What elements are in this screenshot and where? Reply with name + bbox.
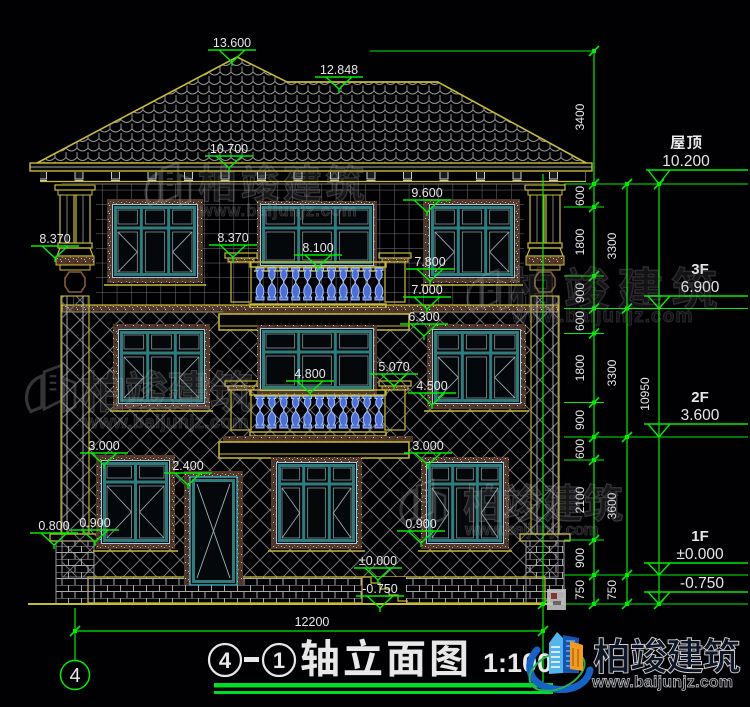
svg-text:4.800: 4.800 [294,367,325,381]
svg-text:www.baijunjz.com: www.baijunjz.com [464,520,600,539]
svg-text:10.700: 10.700 [210,142,248,156]
svg-text:2.400: 2.400 [172,459,203,473]
svg-text:900: 900 [573,548,587,568]
svg-text:6.300: 6.300 [408,310,439,324]
svg-text:7.800: 7.800 [414,255,445,269]
svg-text:1F: 1F [691,528,709,545]
svg-text:3400: 3400 [573,103,587,130]
svg-text:10.200: 10.200 [662,153,710,170]
svg-text:www.baijunjz.com: www.baijunjz.com [591,674,733,691]
svg-text:8.370: 8.370 [39,232,70,246]
svg-text:600: 600 [573,439,587,459]
svg-text:5.070: 5.070 [378,360,409,374]
svg-text:0.800: 0.800 [38,519,69,533]
svg-text:-0.750: -0.750 [680,575,724,592]
svg-text:750: 750 [605,580,619,600]
svg-text:12.848: 12.848 [320,63,358,77]
svg-text:9.600: 9.600 [411,186,442,200]
svg-text:3.000: 3.000 [88,439,119,453]
svg-text:1800: 1800 [573,354,587,381]
svg-text:±0.000: ±0.000 [359,554,397,568]
svg-text:1: 1 [273,648,285,673]
svg-text:www.baijunjz.com: www.baijunjz.com [83,411,250,432]
svg-text:4: 4 [219,648,232,673]
svg-text:750: 750 [573,580,587,600]
svg-text:10950: 10950 [638,377,652,411]
svg-text:1800: 1800 [573,228,587,255]
svg-text:www.baijunjz.com: www.baijunjz.com [511,306,694,327]
svg-text:8.370: 8.370 [217,231,248,245]
svg-text:1:100: 1:100 [483,648,552,678]
svg-text:4.500: 4.500 [416,379,447,393]
svg-text:3300: 3300 [605,232,619,259]
svg-text:www.baijunjz.com: www.baijunjz.com [199,202,358,220]
svg-text:3.000: 3.000 [412,439,443,453]
svg-text:3.600: 3.600 [681,407,720,424]
svg-text:12200: 12200 [295,615,330,629]
svg-text:900: 900 [573,410,587,430]
svg-text:7.000: 7.000 [411,283,442,297]
svg-text:8.100: 8.100 [302,241,333,255]
svg-text:-0.750: -0.750 [362,582,397,596]
svg-text:±0.000: ±0.000 [676,546,724,563]
svg-text:2F: 2F [691,389,709,406]
svg-text:13.600: 13.600 [213,36,251,50]
svg-text:3300: 3300 [605,359,619,386]
svg-text:4: 4 [69,665,80,687]
svg-text:0.900: 0.900 [79,516,110,530]
svg-text:600: 600 [573,186,587,206]
